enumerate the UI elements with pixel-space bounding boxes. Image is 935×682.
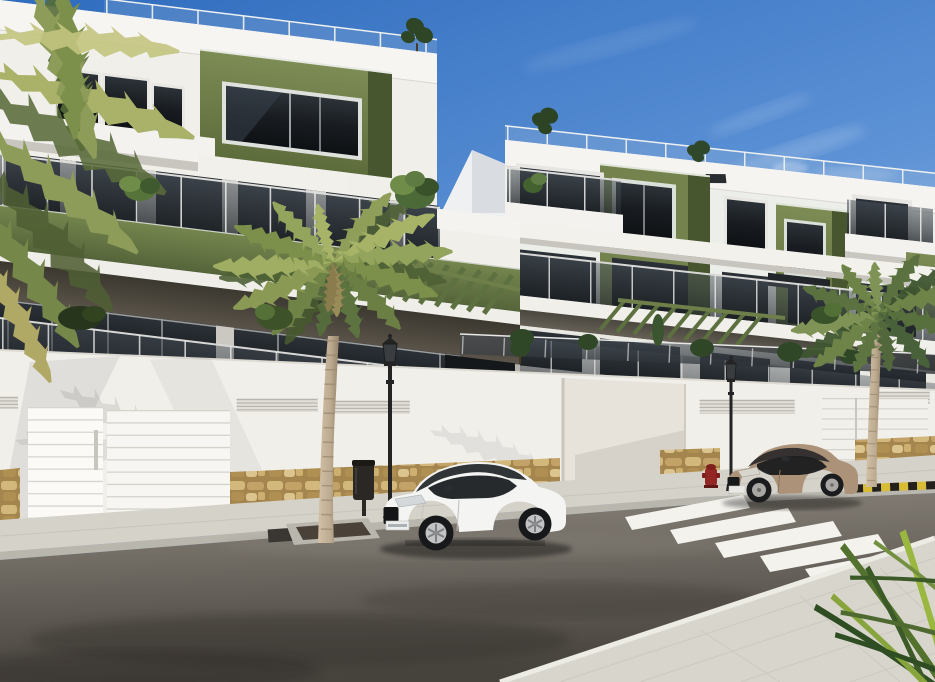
- garage-door: [28, 407, 103, 518]
- garage-door: [107, 410, 230, 522]
- scene-render: [0, 0, 935, 682]
- rendered-photo: [0, 0, 935, 682]
